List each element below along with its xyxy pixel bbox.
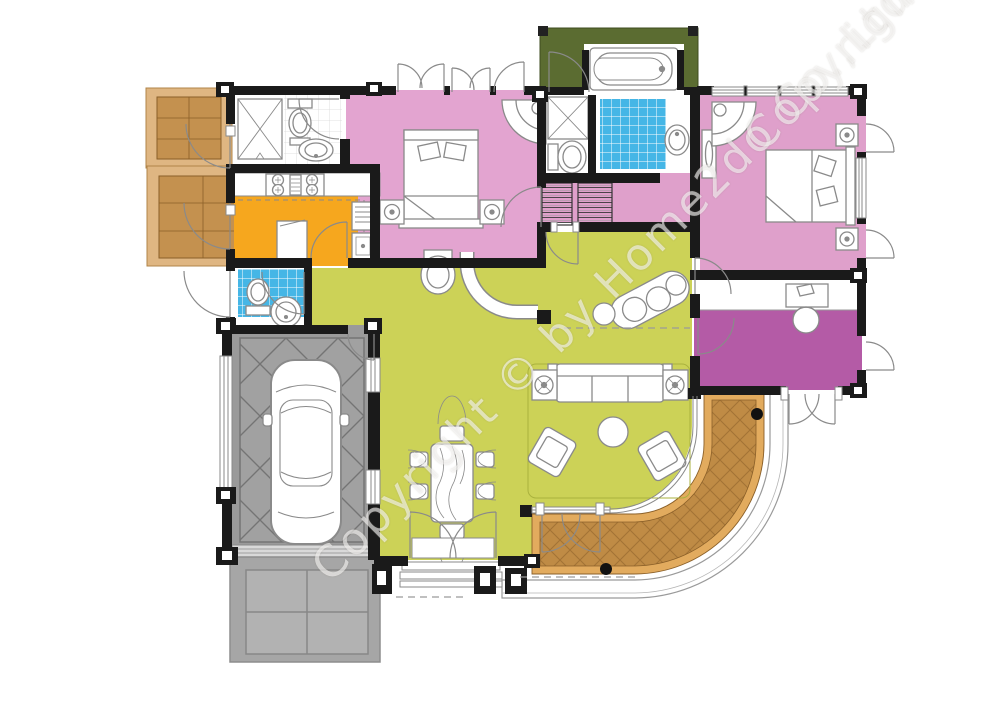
pilaster	[216, 82, 234, 97]
nightstand-lamp-icon	[836, 124, 858, 146]
window	[366, 358, 380, 392]
pilaster	[364, 318, 382, 334]
pilaster	[850, 383, 867, 398]
corridor-strip	[698, 280, 858, 310]
pilaster	[850, 84, 867, 99]
bed-icon	[766, 147, 855, 225]
bed-icon	[399, 130, 483, 228]
toilet-icon	[246, 279, 270, 315]
pilaster	[532, 88, 548, 102]
kitchen-island-icon	[277, 220, 307, 259]
nightstand-lamp-icon	[836, 228, 858, 250]
washbasin-icon	[665, 125, 689, 155]
door-swing	[866, 230, 894, 258]
door-swing	[452, 68, 490, 92]
pilaster	[850, 268, 867, 283]
floor-plan-drawing	[0, 0, 1000, 707]
pilaster	[366, 82, 382, 96]
pouf-icon	[593, 303, 615, 325]
bathtub-icon	[590, 48, 678, 90]
door-swing	[184, 271, 230, 317]
coffee-table-icon	[598, 417, 628, 447]
nightstand-lamp-icon	[380, 200, 404, 224]
pilaster	[524, 554, 540, 568]
side-table-lamp-icon	[663, 370, 688, 400]
car-icon	[263, 360, 349, 544]
washbasin-icon	[299, 139, 333, 161]
planter-corner-post	[688, 26, 698, 36]
planter-corner-post	[538, 26, 548, 36]
door-swing	[866, 124, 894, 152]
side-table-lamp-icon	[532, 370, 557, 400]
garage-door	[232, 545, 370, 557]
deck-post	[600, 563, 612, 575]
washbasin-icon	[271, 297, 301, 327]
deck-post	[751, 408, 763, 420]
door-swing	[789, 394, 835, 424]
nightstand-lamp-icon	[480, 200, 504, 224]
window	[712, 86, 848, 96]
driveway	[230, 557, 380, 662]
washbasin-icon	[421, 250, 455, 294]
porch-column	[505, 568, 527, 594]
window	[856, 158, 866, 218]
window	[220, 356, 232, 496]
floor-plan-canvas: Copyright © by Home2do Co.,Ltd. Copyrigh…	[0, 0, 1000, 707]
pilaster	[216, 547, 238, 565]
window	[366, 470, 380, 504]
stove-icon	[266, 174, 324, 196]
door-swing	[494, 62, 524, 92]
porch-column	[372, 564, 392, 594]
west-deck-upper	[146, 88, 232, 168]
toilet-icon	[548, 141, 586, 173]
door-swing	[866, 342, 894, 370]
door-swing	[398, 64, 444, 92]
pilaster	[216, 487, 236, 504]
master-bath-tiles	[600, 99, 666, 169]
study-floor	[694, 310, 862, 390]
pilaster	[216, 318, 236, 334]
porch-column	[474, 566, 496, 594]
